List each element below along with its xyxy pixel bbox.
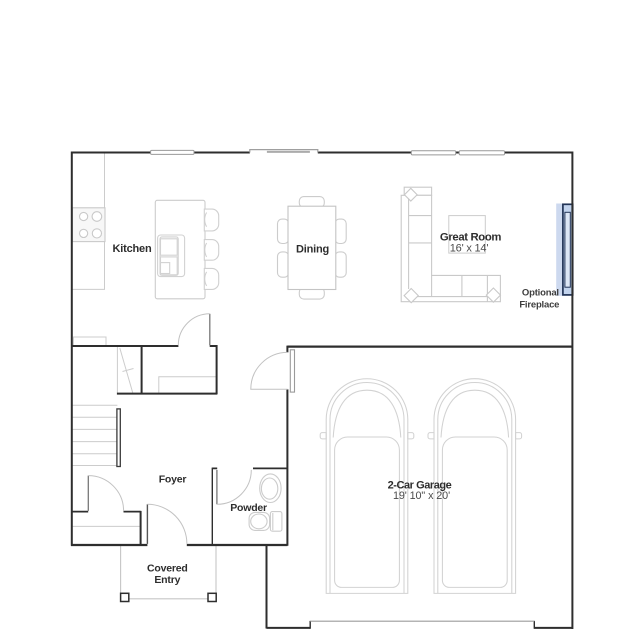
svg-text:Fireplace: Fireplace xyxy=(519,299,559,310)
svg-text:16' x 14': 16' x 14' xyxy=(450,243,489,255)
svg-text:Dining: Dining xyxy=(296,244,329,256)
svg-text:Powder: Powder xyxy=(230,502,267,514)
svg-text:Optional: Optional xyxy=(522,288,559,299)
svg-text:Entry: Entry xyxy=(154,574,180,586)
svg-text:19' 10" x 20': 19' 10" x 20' xyxy=(393,490,450,502)
svg-text:Covered: Covered xyxy=(147,563,188,575)
svg-text:Kitchen: Kitchen xyxy=(113,243,152,255)
svg-text:Foyer: Foyer xyxy=(159,474,187,486)
